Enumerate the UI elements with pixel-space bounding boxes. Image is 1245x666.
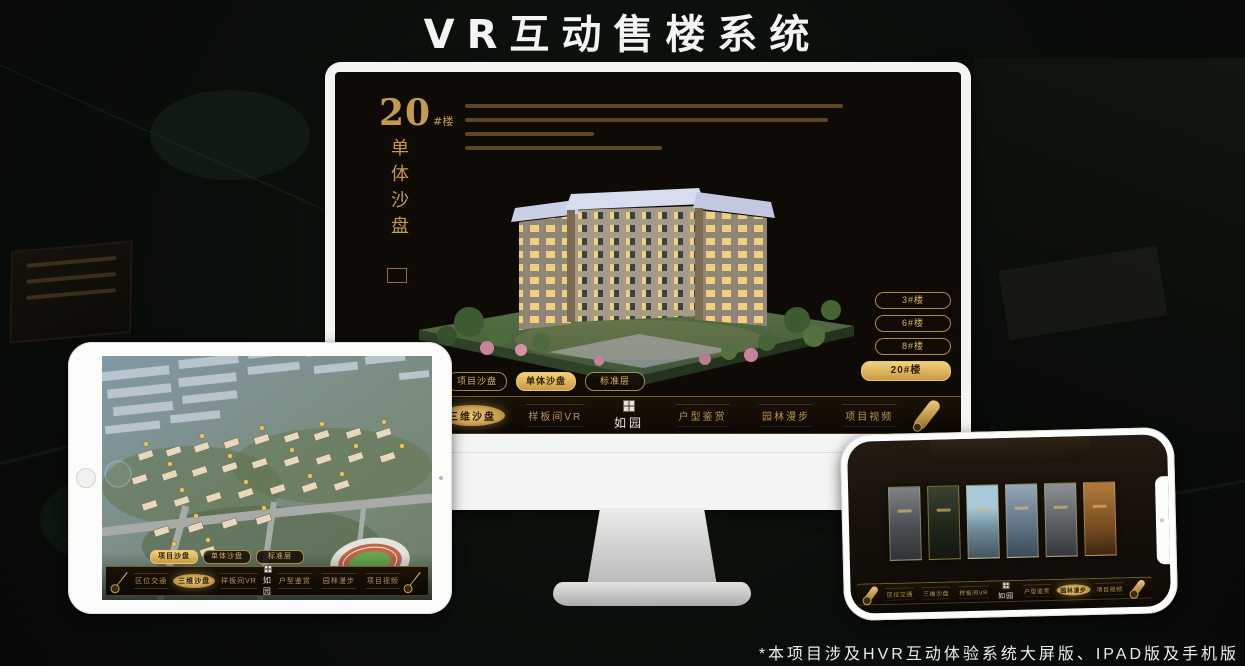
tablet-tab-standard-floor[interactable]: 标准层 xyxy=(256,550,304,564)
scroll-menu-icon[interactable] xyxy=(912,398,942,432)
tab-single-sandtable[interactable]: 单体沙盘 xyxy=(516,372,576,391)
phone-brand-logo: 如园 xyxy=(993,581,1019,601)
tablet-nav-project-video[interactable]: 项目视频 xyxy=(361,573,405,589)
background-plaque xyxy=(9,240,132,343)
brand-logo-text: 如园 xyxy=(614,414,644,431)
phone-nav-location[interactable]: 区位交通 xyxy=(882,587,919,601)
scene-gallery xyxy=(848,480,1156,561)
phone-nav-project-video[interactable]: 项目视频 xyxy=(1091,582,1128,596)
tablet-tab-project-sandtable[interactable]: 项目沙盘 xyxy=(150,550,198,564)
floor-button-6[interactable]: 6#楼 xyxy=(875,315,951,332)
phone-device: 区位交通 三维沙盘 样板间VR 如园 户型鉴赏 园林漫步 项目视频 xyxy=(840,427,1178,621)
gallery-card[interactable] xyxy=(1044,482,1078,557)
promo-stage: VR互动售楼系统 20#楼 单体沙盘 xyxy=(0,0,1245,666)
page-title: VR互动售楼系统 xyxy=(0,2,1245,60)
gallery-card[interactable] xyxy=(888,486,922,561)
gallery-card[interactable] xyxy=(1083,481,1117,556)
gallery-card[interactable] xyxy=(966,484,1000,559)
tablet-brand-logo: 如园 xyxy=(263,565,273,597)
brand-logo: 如园 xyxy=(597,400,661,431)
tablet-tab-single-sandtable[interactable]: 单体沙盘 xyxy=(203,550,251,564)
tablet-nav-floorplans[interactable]: 户型鉴赏 xyxy=(273,573,317,589)
tab-standard-floor[interactable]: 标准层 xyxy=(585,372,645,391)
brand-seal-icon xyxy=(623,400,635,412)
monitor-stand-base xyxy=(553,582,751,606)
monitor-stand-neck xyxy=(587,508,717,586)
compass-icon xyxy=(105,461,131,487)
tablet-nav-showroom-vr[interactable]: 样板间VR xyxy=(215,573,263,589)
tablet-screen: 项目沙盘 单体沙盘 标准层 区位交通 三维沙盘 样板间VR 如园 户型鉴赏 园林… xyxy=(102,356,432,600)
phone-nav-garden-walk[interactable]: 园林漫步 xyxy=(1055,584,1091,596)
phone-brand-seal-icon xyxy=(1002,582,1009,589)
floor-button-20[interactable]: 20#楼 xyxy=(861,361,951,381)
tablet-scroll-icon-left[interactable] xyxy=(113,572,127,590)
gallery-card[interactable] xyxy=(927,485,961,560)
tab-project-sandtable[interactable]: 项目沙盘 xyxy=(447,372,507,391)
tablet-nav-garden-walk[interactable]: 园林漫步 xyxy=(317,573,361,589)
phone-scroll-icon-left[interactable] xyxy=(863,585,879,604)
tablet-brand-seal-icon xyxy=(264,565,272,573)
home-button[interactable] xyxy=(76,468,96,488)
nav-item-floorplans[interactable]: 户型鉴赏 xyxy=(661,404,744,427)
tablet-view-tab-group: 项目沙盘 单体沙盘 标准层 xyxy=(150,550,304,564)
camera-icon xyxy=(439,476,443,480)
phone-nav-floorplans[interactable]: 户型鉴赏 xyxy=(1019,583,1056,597)
tablet-scroll-icon-right[interactable] xyxy=(406,572,420,590)
nav-item-showroom-vr[interactable]: 样板间VR xyxy=(514,404,597,427)
tablet-nav-location[interactable]: 区位交通 xyxy=(129,573,173,589)
floor-button-group: 3#楼 6#楼 8#楼 20#楼 xyxy=(861,292,951,381)
phone-navbar: 区位交通 三维沙盘 样板间VR 如园 户型鉴赏 园林漫步 项目视频 xyxy=(856,577,1152,606)
nav-item-project-video[interactable]: 项目视频 xyxy=(828,404,911,427)
block-title: 20#楼 xyxy=(379,92,453,134)
floor-button-8[interactable]: 8#楼 xyxy=(875,338,951,355)
tablet-device: 项目沙盘 单体沙盘 标准层 区位交通 三维沙盘 样板间VR 如园 户型鉴赏 园林… xyxy=(68,342,452,614)
tablet-nav-3d-sandtable[interactable]: 三维沙盘 xyxy=(173,574,215,588)
tablet-navbar: 区位交通 三维沙盘 样板间VR 如园 户型鉴赏 园林漫步 项目视频 xyxy=(106,566,428,596)
phone-scroll-icon-right[interactable] xyxy=(1130,579,1146,598)
gallery-card[interactable] xyxy=(1005,483,1039,558)
floor-button-3[interactable]: 3#楼 xyxy=(875,292,951,309)
phone-nav-3d-sandtable[interactable]: 三维沙盘 xyxy=(918,586,955,600)
footnote: *本项目涉及HVR互动体验系统大屏版、IPAD版及手机版 xyxy=(759,640,1239,664)
background-photo xyxy=(973,58,1245,433)
phone-camera-icon xyxy=(1160,518,1164,522)
view-tab-group: 项目沙盘 单体沙盘 标准层 xyxy=(447,372,645,391)
nav-item-garden-walk[interactable]: 园林漫步 xyxy=(744,404,827,427)
block-suffix: #楼 xyxy=(433,115,453,128)
building-3d-model xyxy=(399,144,869,394)
phone-nav-showroom-vr[interactable]: 样板间VR xyxy=(954,585,993,599)
block-number: 20 xyxy=(379,92,431,134)
interior-pergola xyxy=(930,436,1091,466)
phone-screen: 区位交通 三维沙盘 样板间VR 如园 户型鉴赏 园林漫步 项目视频 xyxy=(847,434,1171,614)
phone-notch xyxy=(1155,476,1170,564)
